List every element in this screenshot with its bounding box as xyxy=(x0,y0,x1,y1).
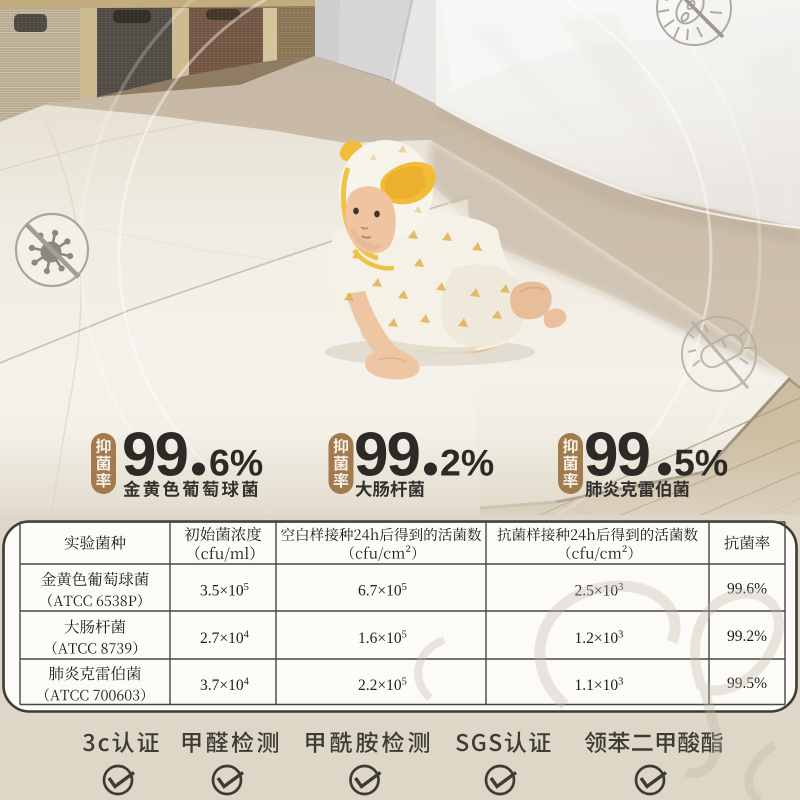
svg-text:99.2%: 99.2% xyxy=(727,628,767,645)
svg-text:2%: 2% xyxy=(440,442,494,484)
svg-text:99: 99 xyxy=(354,421,419,490)
svg-text:1.2×103: 1.2×103 xyxy=(575,630,624,648)
svg-text:1.6×105: 1.6×105 xyxy=(358,630,407,648)
svg-text:6%: 6% xyxy=(209,442,263,484)
svg-text:3.7×104: 3.7×104 xyxy=(200,676,250,694)
svg-text:3.5×105: 3.5×105 xyxy=(200,582,249,600)
svg-text:99: 99 xyxy=(584,421,649,490)
svg-text:6.7×105: 6.7×105 xyxy=(358,582,407,600)
svg-text:5%: 5% xyxy=(674,442,728,484)
svg-text:1.1×103: 1.1×103 xyxy=(575,676,624,694)
svg-text:2.2×105: 2.2×105 xyxy=(358,676,407,694)
svg-text:99: 99 xyxy=(122,421,187,490)
svg-text:2.7×104: 2.7×104 xyxy=(200,630,250,648)
